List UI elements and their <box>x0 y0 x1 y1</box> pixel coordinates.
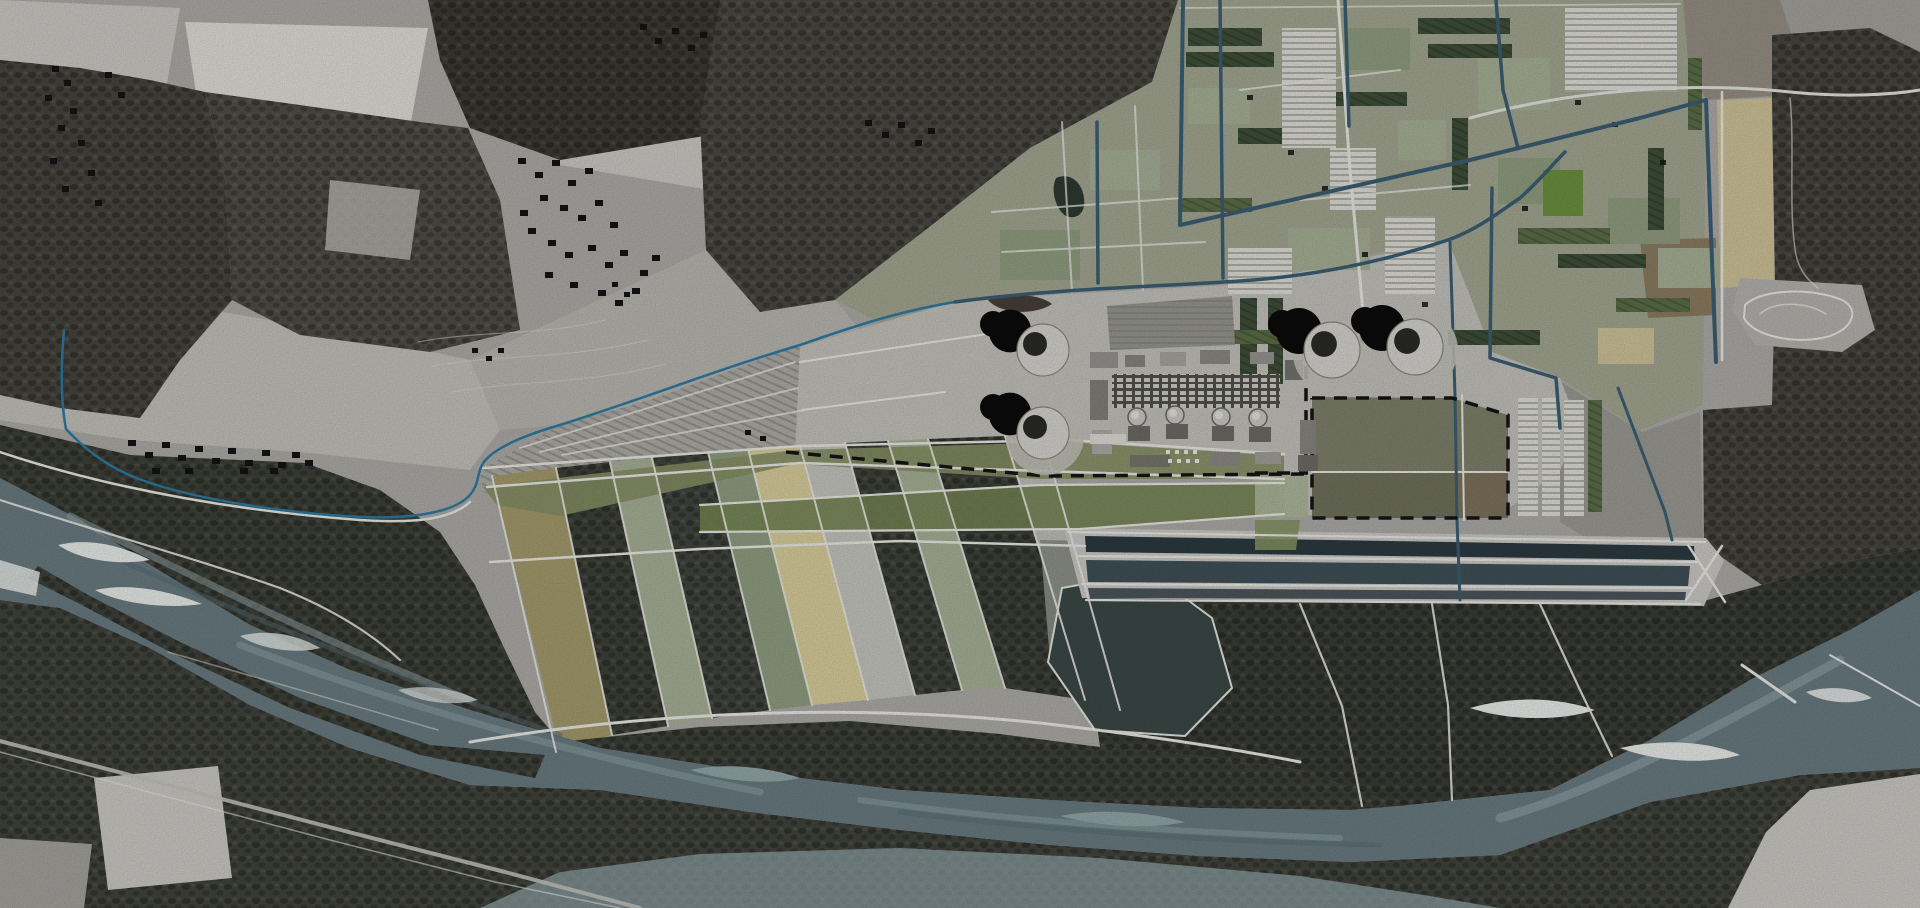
photo-grain-overlay <box>0 0 1920 908</box>
map-canvas <box>0 0 1920 908</box>
aerial-photomontage <box>0 0 1920 908</box>
